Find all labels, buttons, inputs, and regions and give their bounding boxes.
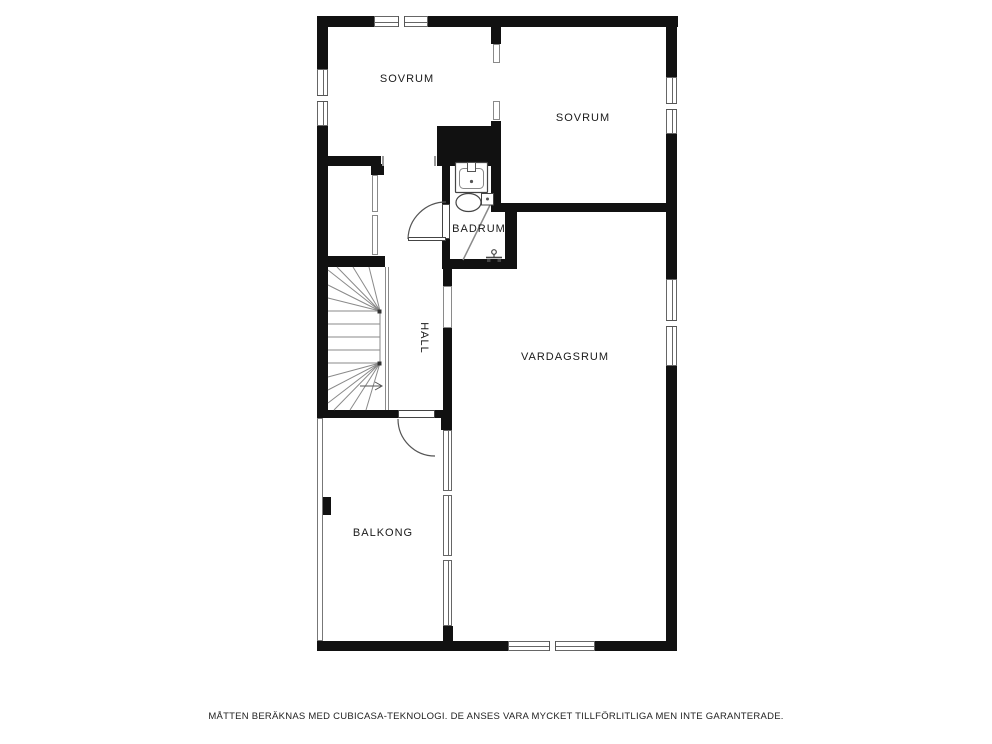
wall-hall-bottom — [317, 410, 398, 418]
badrum-door-leaf — [408, 237, 446, 241]
wall-hall-vardagsrum-lower — [443, 328, 452, 412]
opening-bedroom-divider-a — [493, 44, 500, 63]
wall-outer-top — [317, 16, 678, 27]
wall-hall-vardagsrum-upper — [443, 268, 452, 286]
balcony-door-leaf — [398, 410, 435, 418]
opening-bedroom-left-jamb-b — [434, 156, 436, 166]
opening-bedroom-divider-b — [493, 101, 500, 120]
wall-badrum-bottom — [442, 259, 517, 269]
room-label-sovrum-right: SOVRUM — [523, 111, 643, 125]
wall-badrum-left-upper — [442, 166, 450, 204]
room-label-balkong: BALKONG — [323, 526, 443, 540]
balcony-door-swing-icon — [398, 419, 435, 456]
wall-glazing-bottom-stub — [443, 626, 453, 641]
window-right-upper — [666, 77, 677, 134]
room-label-vardagsrum: VARDAGSRUM — [505, 350, 625, 364]
sink-icon — [456, 163, 488, 193]
wall-stairs-top — [317, 256, 385, 267]
disclaimer-text: MÅTTEN BERÄKNAS MED CUBICASA-TEKNOLOGI. … — [0, 711, 992, 722]
wall-bedroom-right-bottom — [497, 203, 677, 212]
wall-bedroom-divider-top — [491, 27, 501, 44]
window-bottom — [508, 641, 595, 651]
window-top — [374, 16, 428, 27]
room-label-badrum: BADRUM — [419, 222, 539, 236]
window-right-mid — [666, 279, 677, 366]
balcony-glazing-panel-1 — [443, 430, 452, 491]
window-left — [317, 69, 328, 126]
opening-bedroom-left-jamb-a — [382, 156, 384, 166]
staircase-icon — [328, 267, 389, 410]
opening-hall-vardagsrum — [443, 286, 452, 328]
closet-sliding-door-a — [372, 175, 378, 212]
closet-sliding-door-b — [372, 215, 378, 255]
room-label-hall: HALL — [417, 278, 431, 398]
balcony-glazing-panel-2 — [443, 495, 452, 556]
stairs-direction-arrow-icon — [360, 382, 382, 390]
floorplan-page: SOVRUM SOVRUM BADRUM HALL VARDAGSRUM BAL… — [0, 0, 992, 744]
wall-bedroom-divider — [491, 121, 501, 212]
toilet-icon — [456, 194, 494, 212]
wall-outer-bottom — [317, 641, 677, 651]
wall-balcony-door-stub — [441, 418, 452, 430]
room-label-sovrum-left: SOVRUM — [347, 72, 467, 86]
balcony-glazing-panel-3 — [443, 560, 452, 626]
